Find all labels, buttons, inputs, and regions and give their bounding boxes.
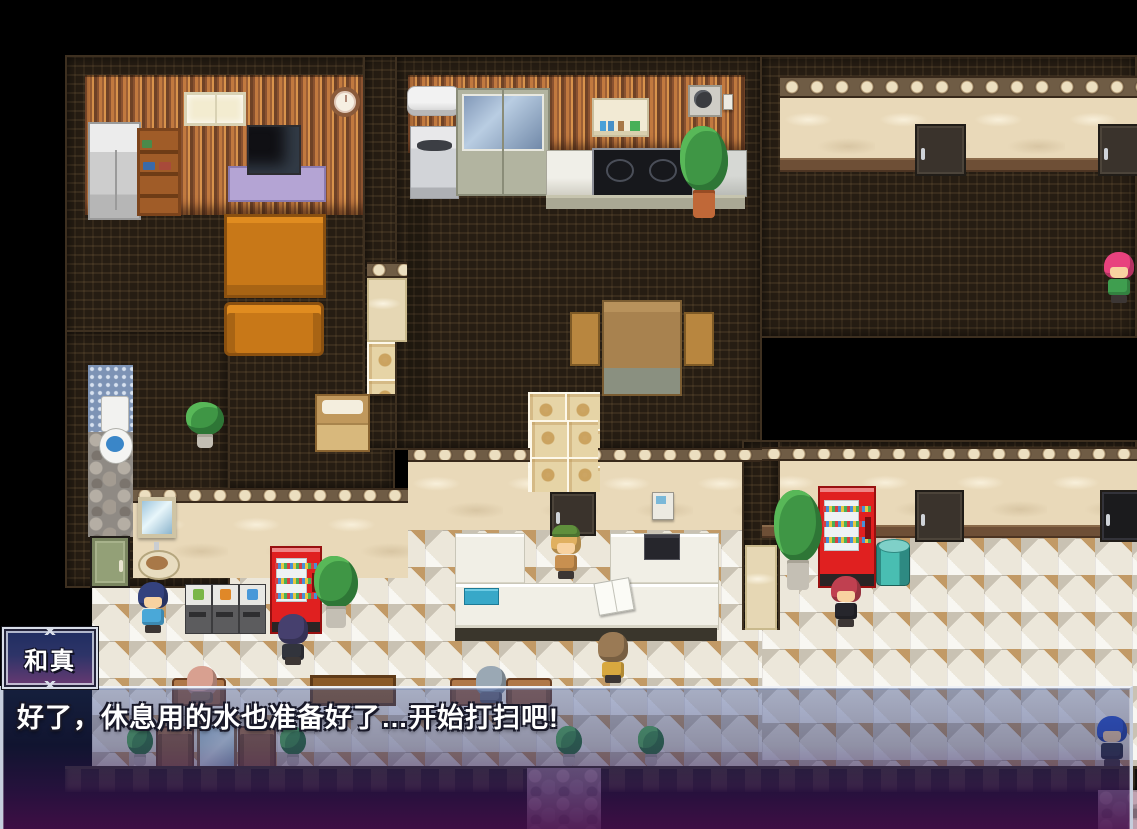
game-screen: 好了，休息用的水也准备好了…开始打扫吧! 和真 [0,0,1137,829]
tv[interactable] [247,125,301,175]
dialogue-text: 好了，休息用的水也准备好了…开始打扫吧! [17,696,559,735]
reception-counter-base [455,628,717,641]
wall-clock-icon [330,87,360,117]
ventilation-fan-icon [688,85,722,117]
npc-brown-hair-back-legs [605,675,621,683]
guest-ledger[interactable] [593,577,634,616]
divider-frieze [367,262,407,278]
dining-table [602,300,682,396]
npc-brown-hair-back-hair [598,632,628,662]
houseplant-icon [186,402,224,448]
upper-hall-door-1[interactable] [915,124,966,176]
speaker-name: 和真 [24,641,76,676]
npc-brown-hair-back[interactable] [596,632,630,684]
kitchen-shelf [592,98,649,137]
upper-hall-frieze [780,76,1137,98]
counter-tray [464,588,499,605]
lobby-right-frieze [762,447,1137,461]
bookshelf[interactable] [137,128,181,216]
lobby-far-right-door[interactable] [1100,490,1137,542]
lobby-tree-right-icon [774,490,822,590]
toilet[interactable] [99,396,131,464]
washstand-sink[interactable] [138,542,178,580]
green-door[interactable] [90,536,130,588]
living-room-table [224,214,326,298]
npc-pink-hair-face [1110,267,1128,278]
npc-red-hair-suit[interactable] [829,576,863,628]
npc-red-hair-suit-face [837,591,855,602]
dialogue-message-window: 好了，休息用的水也准备好了…开始打扫吧! [0,686,1133,829]
npc-blue-kid-torso [142,609,164,625]
npc-pink-hair[interactable] [1102,252,1136,304]
bread-maker [546,150,594,197]
fan-switch[interactable] [723,94,733,110]
wall-shadow [408,200,428,420]
npc-receptionist-torso [555,555,577,571]
dining-chair-left [570,312,600,366]
lobby-pillar-face [745,545,777,630]
couch[interactable] [224,302,324,356]
npc-purple-hair-back-hair [278,614,308,644]
washing-machine[interactable] [410,126,459,199]
npc-blue-kid[interactable] [136,582,170,634]
npc-pink-hair-legs [1111,295,1127,303]
window [184,92,246,126]
bed[interactable] [315,394,370,452]
barrel[interactable] [876,542,910,586]
npc-receptionist-face [557,543,575,554]
npc-red-hair-suit-torso [835,603,857,619]
wall-mirror [138,497,176,538]
npc-purple-hair-back-legs [285,657,301,665]
npc-blue-kid-legs [145,625,161,633]
air-conditioner [407,86,460,116]
kitchen-potted-tree-icon [680,126,728,218]
npc-blue-kid-face [144,597,162,608]
vending-machine-right[interactable] [818,486,876,588]
npc-red-hair-suit-legs [838,619,854,627]
dining-chair-right [684,312,714,366]
name-box-ornament-bottom [42,681,58,689]
npc-pink-hair-torso [1108,279,1130,295]
npc-purple-hair-back[interactable] [276,614,310,666]
wardrobe[interactable] [88,122,141,220]
wall-intercom-icon[interactable] [652,492,674,520]
name-box-ornament-top [42,627,58,635]
dialogue-name-box: 和真 [2,627,98,689]
reception-counter-left-arm [455,533,525,587]
recycle-bins[interactable] [185,584,265,632]
cash-register [644,534,680,560]
divider-pillar [367,278,407,342]
npc-receptionist-legs [558,571,574,579]
npc-receptionist[interactable] [549,528,583,580]
doorway-floor-strip [530,420,598,492]
upper-hall-door-2[interactable] [1098,124,1137,176]
npc-receptionist-hat [552,525,580,537]
lobby-tree-left-icon [314,556,358,628]
lobby-right-door[interactable] [915,490,964,542]
kitchen-cabinet[interactable] [456,88,550,196]
